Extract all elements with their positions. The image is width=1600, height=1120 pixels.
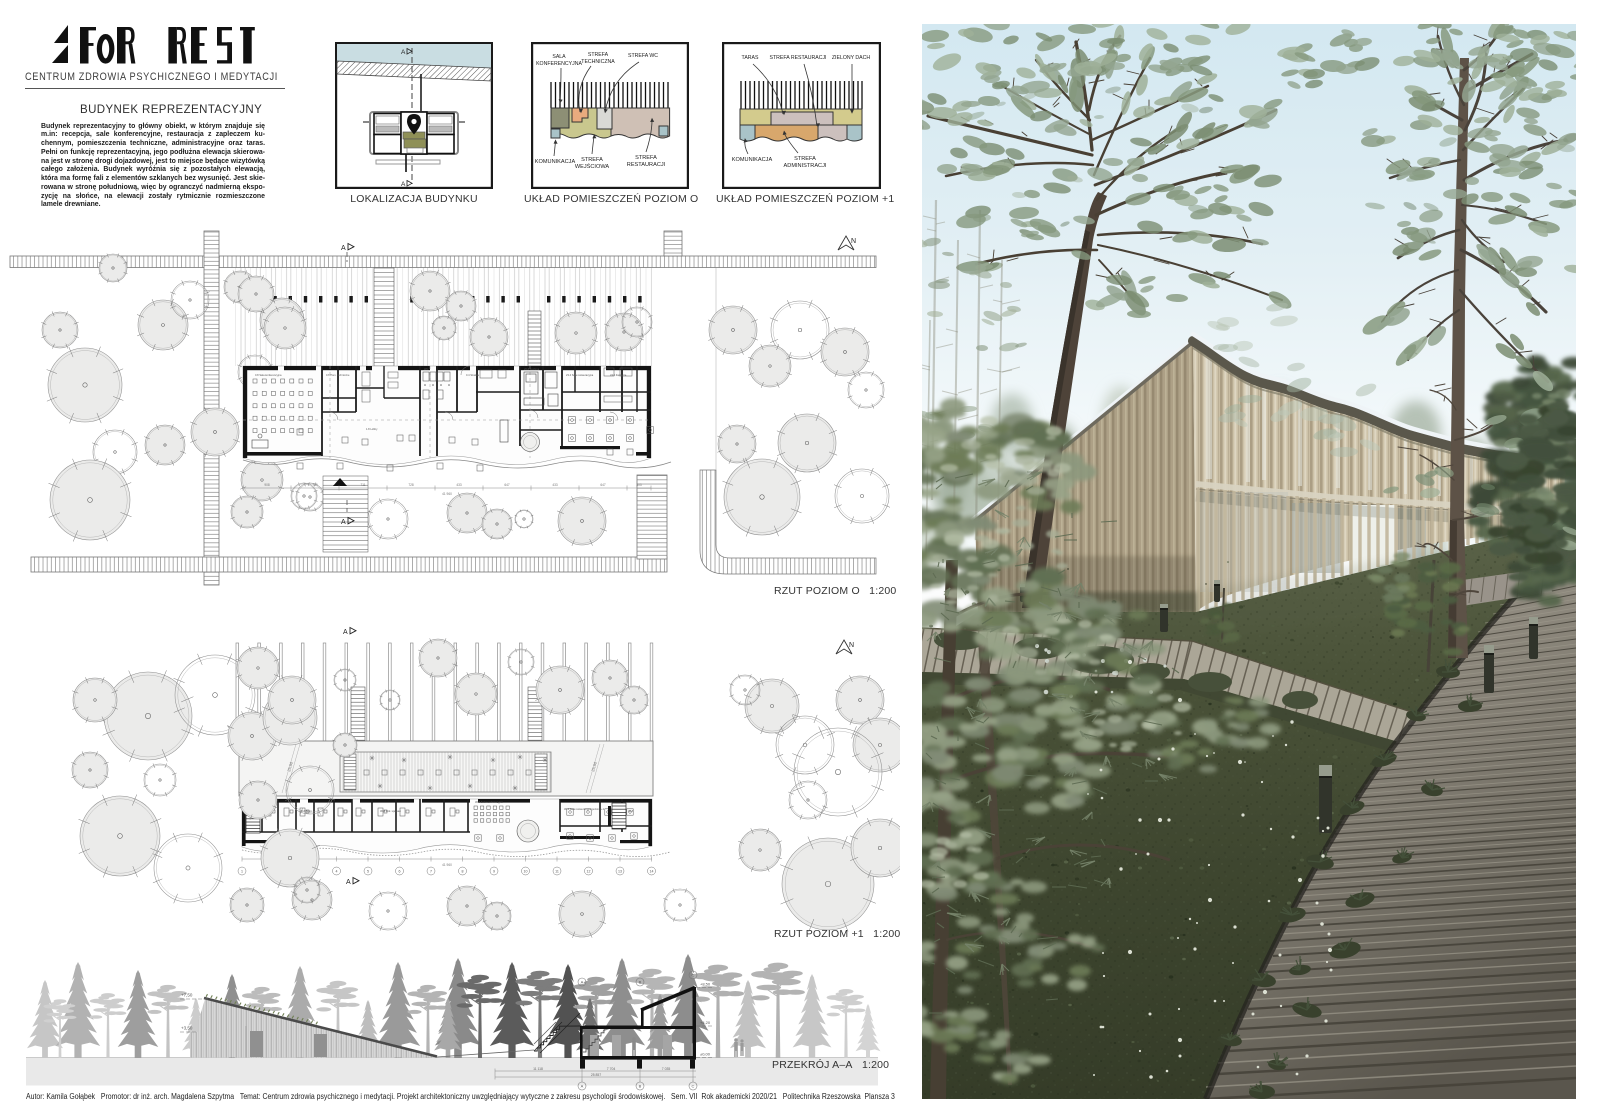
svg-text:±0,00: ±0,00: [700, 1052, 711, 1057]
svg-text:433: 433: [456, 483, 462, 487]
svg-text:A: A: [401, 181, 406, 188]
svg-text:1: 1: [241, 869, 243, 873]
svg-text:ADMINISTRACJI: ADMINISTRACJI: [784, 163, 827, 169]
svg-text:0.4 Szatnia: 0.4 Szatnia: [466, 373, 480, 377]
svg-text:SALA: SALA: [552, 54, 566, 60]
svg-text:12: 12: [587, 869, 591, 873]
svg-text:20.8 Kuchnia: 20.8 Kuchnia: [524, 367, 540, 371]
svg-text:728: 728: [408, 483, 414, 487]
svg-text:303: 303: [636, 483, 642, 487]
svg-text:A: A: [343, 629, 348, 636]
svg-text:B: B: [639, 1084, 642, 1089]
svg-text:8: 8: [462, 869, 464, 873]
svg-text:+8,50: +8,50: [700, 982, 711, 987]
svg-text:TARAS: TARAS: [742, 55, 759, 61]
svg-text:ZIELONY DACH: ZIELONY DACH: [832, 55, 870, 61]
svg-text:KOMUNIKACJA: KOMUNIKACJA: [732, 157, 773, 163]
svg-text:5: 5: [367, 869, 369, 873]
svg-text:647: 647: [504, 483, 510, 487]
svg-text:A: A: [341, 245, 346, 252]
svg-text:+7,50: +7,50: [181, 993, 193, 998]
svg-text:STREFA: STREFA: [794, 156, 816, 162]
svg-text:WC: WC: [424, 367, 428, 371]
svg-text:1.8 Lobby: 1.8 Lobby: [366, 427, 378, 431]
svg-text:A: A: [581, 980, 584, 985]
svg-text:KOMUNIKACJA: KOMUNIKACJA: [535, 159, 576, 165]
svg-text:A: A: [346, 879, 351, 886]
svg-text:30.8 Sala konferencyjna: 30.8 Sala konferencyjna: [475, 800, 503, 804]
svg-text:A: A: [581, 1084, 584, 1089]
svg-text:9: 9: [493, 869, 495, 873]
svg-text:7 035: 7 035: [662, 1067, 671, 1071]
svg-text:N: N: [851, 238, 856, 245]
svg-text:C: C: [692, 1084, 695, 1089]
svg-text:433: 433: [552, 483, 558, 487]
svg-text:B: B: [639, 980, 642, 985]
svg-text:908: 908: [264, 483, 270, 487]
svg-text:41 960: 41 960: [442, 492, 452, 496]
svg-text:23.4 Sala restauracyjna: 23.4 Sala restauracyjna: [566, 373, 594, 377]
svg-text:7 704: 7 704: [607, 1067, 616, 1071]
svg-text:+4,20: +4,20: [700, 1020, 711, 1025]
svg-text:30.8: 30.8: [628, 809, 634, 813]
svg-text:RESTAURACJI: RESTAURACJI: [627, 162, 666, 168]
svg-text:STREFA: STREFA: [635, 155, 657, 161]
svg-text:647: 647: [600, 483, 606, 487]
svg-text:711: 711: [360, 483, 365, 487]
svg-text:14: 14: [650, 869, 654, 873]
svg-text:41 960: 41 960: [442, 863, 452, 867]
svg-text:13: 13: [618, 869, 622, 873]
svg-text:N: N: [849, 642, 854, 649]
svg-text:10: 10: [524, 869, 528, 873]
svg-text:11: 11: [555, 869, 559, 873]
svg-text:6: 6: [399, 869, 401, 873]
svg-text:C: C: [692, 973, 695, 978]
svg-text:KONFERENCYJNA: KONFERENCYJNA: [536, 61, 582, 67]
svg-text:A: A: [341, 519, 346, 526]
svg-text:+3,50: +3,50: [181, 1026, 193, 1031]
svg-text:0.6 Pom. techniczne: 0.6 Pom. techniczne: [326, 373, 350, 377]
svg-text:TECHNICZNA: TECHNICZNA: [581, 59, 615, 65]
svg-text:4: 4: [336, 869, 338, 873]
svg-text:A: A: [401, 49, 406, 56]
svg-text:7: 7: [430, 869, 432, 873]
svg-text:30.4 Sala restauracyjna pozio: 30.4 Sala restauracyjna poziom +1: [564, 807, 605, 811]
svg-text:STREFA: STREFA: [581, 157, 603, 163]
svg-text:25 857: 25 857: [591, 1073, 601, 1077]
svg-text:24.0 Zaplecze: 24.0 Zaplecze: [610, 373, 627, 377]
svg-text:30.8 Pok. spotkań: 30.8 Pok. spotkań: [380, 809, 401, 813]
svg-text:STREFA: STREFA: [588, 52, 609, 58]
svg-text:11 118: 11 118: [533, 1067, 543, 1071]
svg-text:709: 709: [312, 483, 318, 487]
svg-text:STREFA RESTAURACJI: STREFA RESTAURACJI: [770, 55, 827, 61]
svg-text:WEJŚCIOWA: WEJŚCIOWA: [575, 162, 610, 170]
svg-text:0.8 Sala konferencyjna: 0.8 Sala konferencyjna: [255, 373, 282, 377]
svg-text:STREFA WC: STREFA WC: [628, 53, 658, 59]
